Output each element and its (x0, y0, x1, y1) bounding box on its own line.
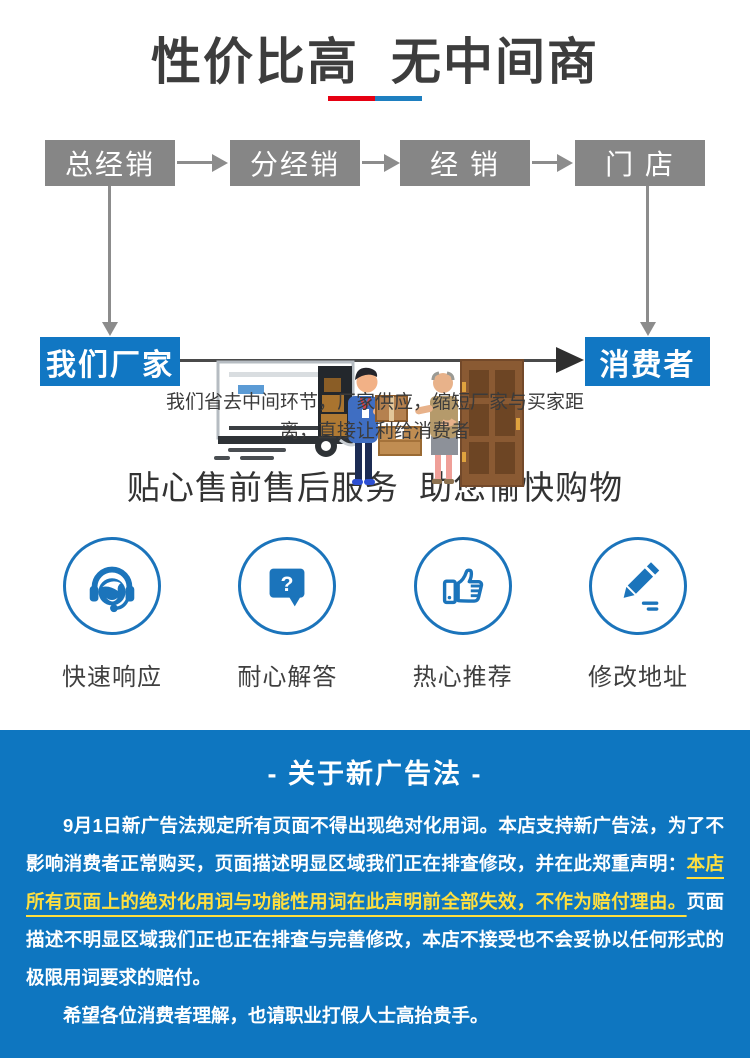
service-circle (589, 537, 687, 635)
service-circle (414, 537, 512, 635)
notice-text: 9月1日新广告法规定所有页面不得出现绝对化用词。本店支持新广告法，为了不影响消费… (26, 815, 724, 874)
arrow-down-icon (102, 322, 118, 336)
question-bubble-icon: ? (256, 555, 318, 617)
service-label: 耐心解答 (237, 657, 337, 692)
distribution-flow-diagram: 总经销 分经销 经 销 门 店 (0, 120, 750, 445)
service-item-fast-response: 快速响应 (47, 537, 177, 692)
headset-icon (81, 555, 143, 617)
service-label: 热心推荐 (413, 657, 513, 692)
title-underline (328, 96, 422, 101)
arrow-down-icon (646, 186, 649, 322)
arrow-right-icon (212, 154, 228, 172)
ad-law-notice-section: - 关于新广告法 - 9月1日新广告法规定所有页面不得出现绝对化用词。本店支持新… (0, 730, 750, 1058)
arrow-down-icon (108, 186, 111, 322)
flow-box-dealer: 经 销 (400, 140, 530, 186)
service-item-warm-recommendation: 热心推荐 (398, 537, 528, 692)
underline-red-segment (328, 96, 375, 101)
arrow-right-icon (362, 161, 385, 164)
svg-text:?: ? (281, 572, 294, 596)
promo-page: 性价比高 无中间商 总经销 分经销 经 销 门 店 (0, 0, 750, 1058)
notice-closing: 希望各位消费者理解，也请职业打假人士高抬贵手。 (26, 997, 724, 1035)
flow-box-general-distributor: 总经销 (45, 140, 175, 186)
service-row: 快速响应 ? 耐心解答 (47, 537, 703, 692)
arrow-down-icon (640, 322, 656, 336)
service-circle (63, 537, 161, 635)
flow-box-store: 门 店 (575, 140, 705, 186)
arrow-right-icon (532, 161, 558, 164)
arrow-right-icon (384, 154, 400, 172)
underline-blue-segment (375, 96, 422, 101)
service-item-change-address: 修改地址 (573, 537, 703, 692)
flow-caption: 我们省去中间环节，厂家供应，缩短厂家与买家距离，直接让利给消费者 (162, 388, 588, 446)
arrow-right-icon (557, 154, 573, 172)
factory-to-consumer-arrowhead (556, 347, 584, 373)
service-circle: ? (238, 537, 336, 635)
thumbs-up-icon (432, 555, 494, 617)
service-label: 修改地址 (588, 657, 688, 692)
notice-paragraph: 9月1日新广告法规定所有页面不得出现绝对化用词。本店支持新广告法，为了不影响消费… (26, 807, 724, 997)
pencil-icon (607, 555, 669, 617)
flow-box-our-factory: 我们厂家 (40, 337, 180, 386)
flow-box-consumer: 消费者 (585, 337, 710, 386)
arrow-right-icon (177, 161, 213, 164)
hero-section: 性价比高 无中间商 (0, 0, 750, 120)
flow-box-sub-distributor: 分经销 (230, 140, 360, 186)
service-label: 快速响应 (62, 657, 162, 692)
notice-title: - 关于新广告法 - (26, 752, 724, 791)
service-item-patient-answers: ? 耐心解答 (222, 537, 352, 692)
page-title: 性价比高 无中间商 (0, 0, 750, 94)
